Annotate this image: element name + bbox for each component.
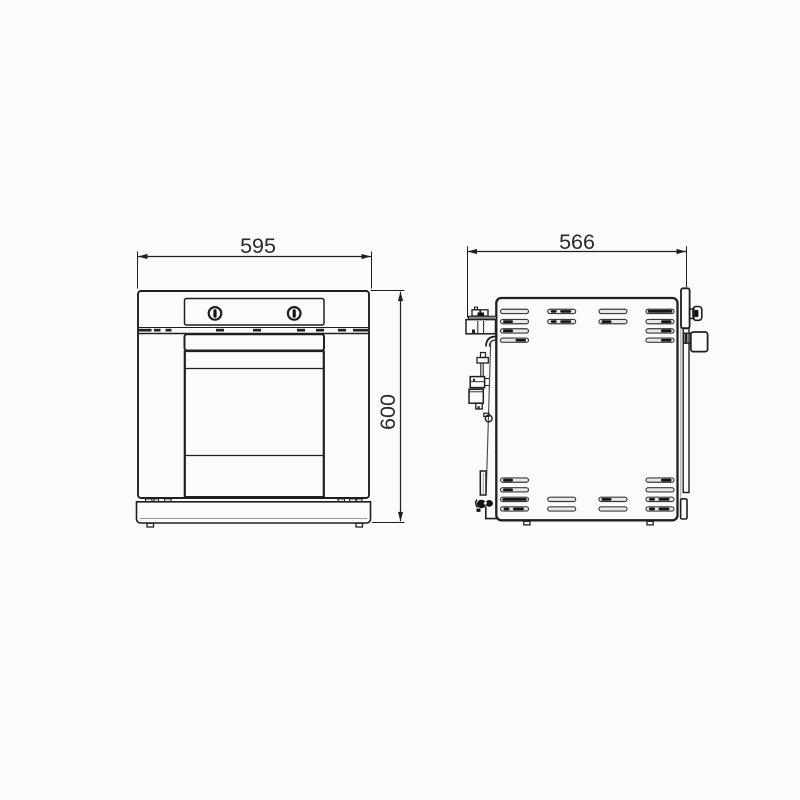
svg-text:600: 600 xyxy=(376,394,400,430)
svg-text:595: 595 xyxy=(240,234,276,258)
svg-text:566: 566 xyxy=(559,230,595,254)
